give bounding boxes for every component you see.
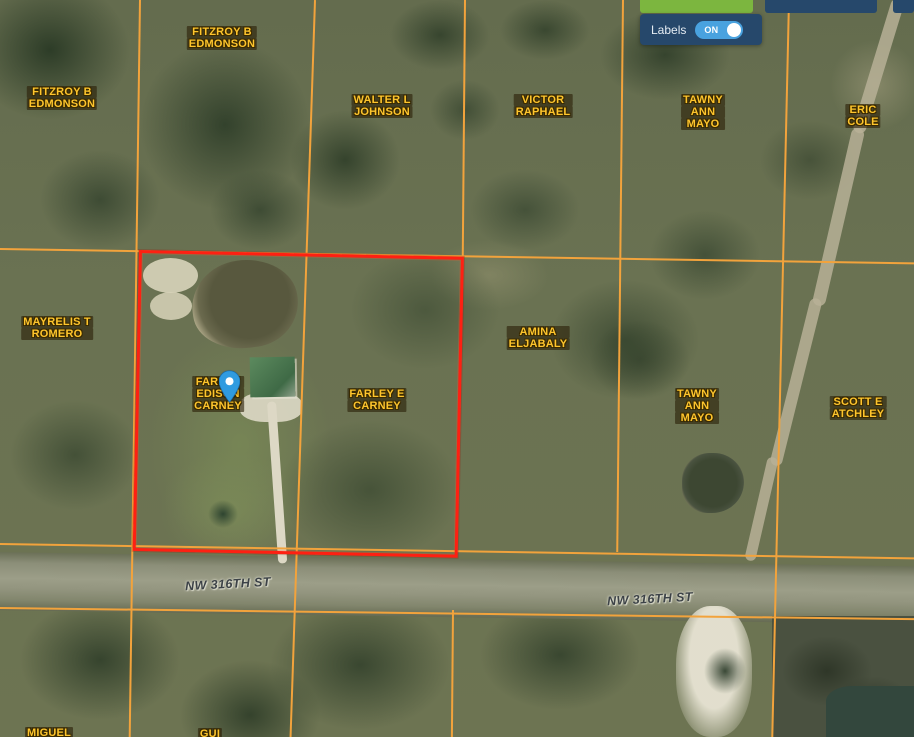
parcel-label: MIGUEL (25, 727, 73, 737)
labels-toggle-switch[interactable]: ON (695, 21, 743, 39)
parcel-label: MAYRELIS TROMERO (21, 316, 93, 340)
parcel-label: FARLEY ECARNEY (347, 388, 406, 412)
water-area (826, 686, 914, 737)
parcel-label: GUI (198, 728, 222, 737)
labels-toggle-label: Labels (651, 23, 686, 37)
map-canvas[interactable]: Labels ON FITZROY BEDMONSONFITZROY BEDMO… (0, 0, 914, 737)
parcel-label: FITZROY BEDMONSON (27, 86, 97, 110)
parcel-label: WALTER LJOHNSON (352, 94, 413, 118)
action-button-dark-2[interactable] (893, 0, 914, 13)
labels-toggle-panel: Labels ON (640, 14, 762, 45)
parcel-label: SCOTT EATCHLEY (830, 396, 887, 420)
toggle-state-text: ON (704, 25, 718, 35)
toggle-knob (727, 23, 741, 37)
action-button-green[interactable] (640, 0, 753, 13)
selected-parcel-outline[interactable] (133, 250, 464, 558)
action-button-dark[interactable] (765, 0, 877, 13)
parcel-label: TAWNYANNMAYO (681, 94, 725, 130)
map-pin-icon (219, 370, 240, 403)
parcel-label: FITZROY BEDMONSON (187, 26, 257, 50)
parcel-label: TAWNYANNMAYO (675, 388, 719, 424)
parcel-label: VICTORRAPHAEL (514, 94, 573, 118)
vegetation-patch (704, 648, 746, 694)
parcel-label: ERICCOLE (845, 104, 880, 128)
parcel-label: AMINAELJABALY (507, 326, 570, 350)
